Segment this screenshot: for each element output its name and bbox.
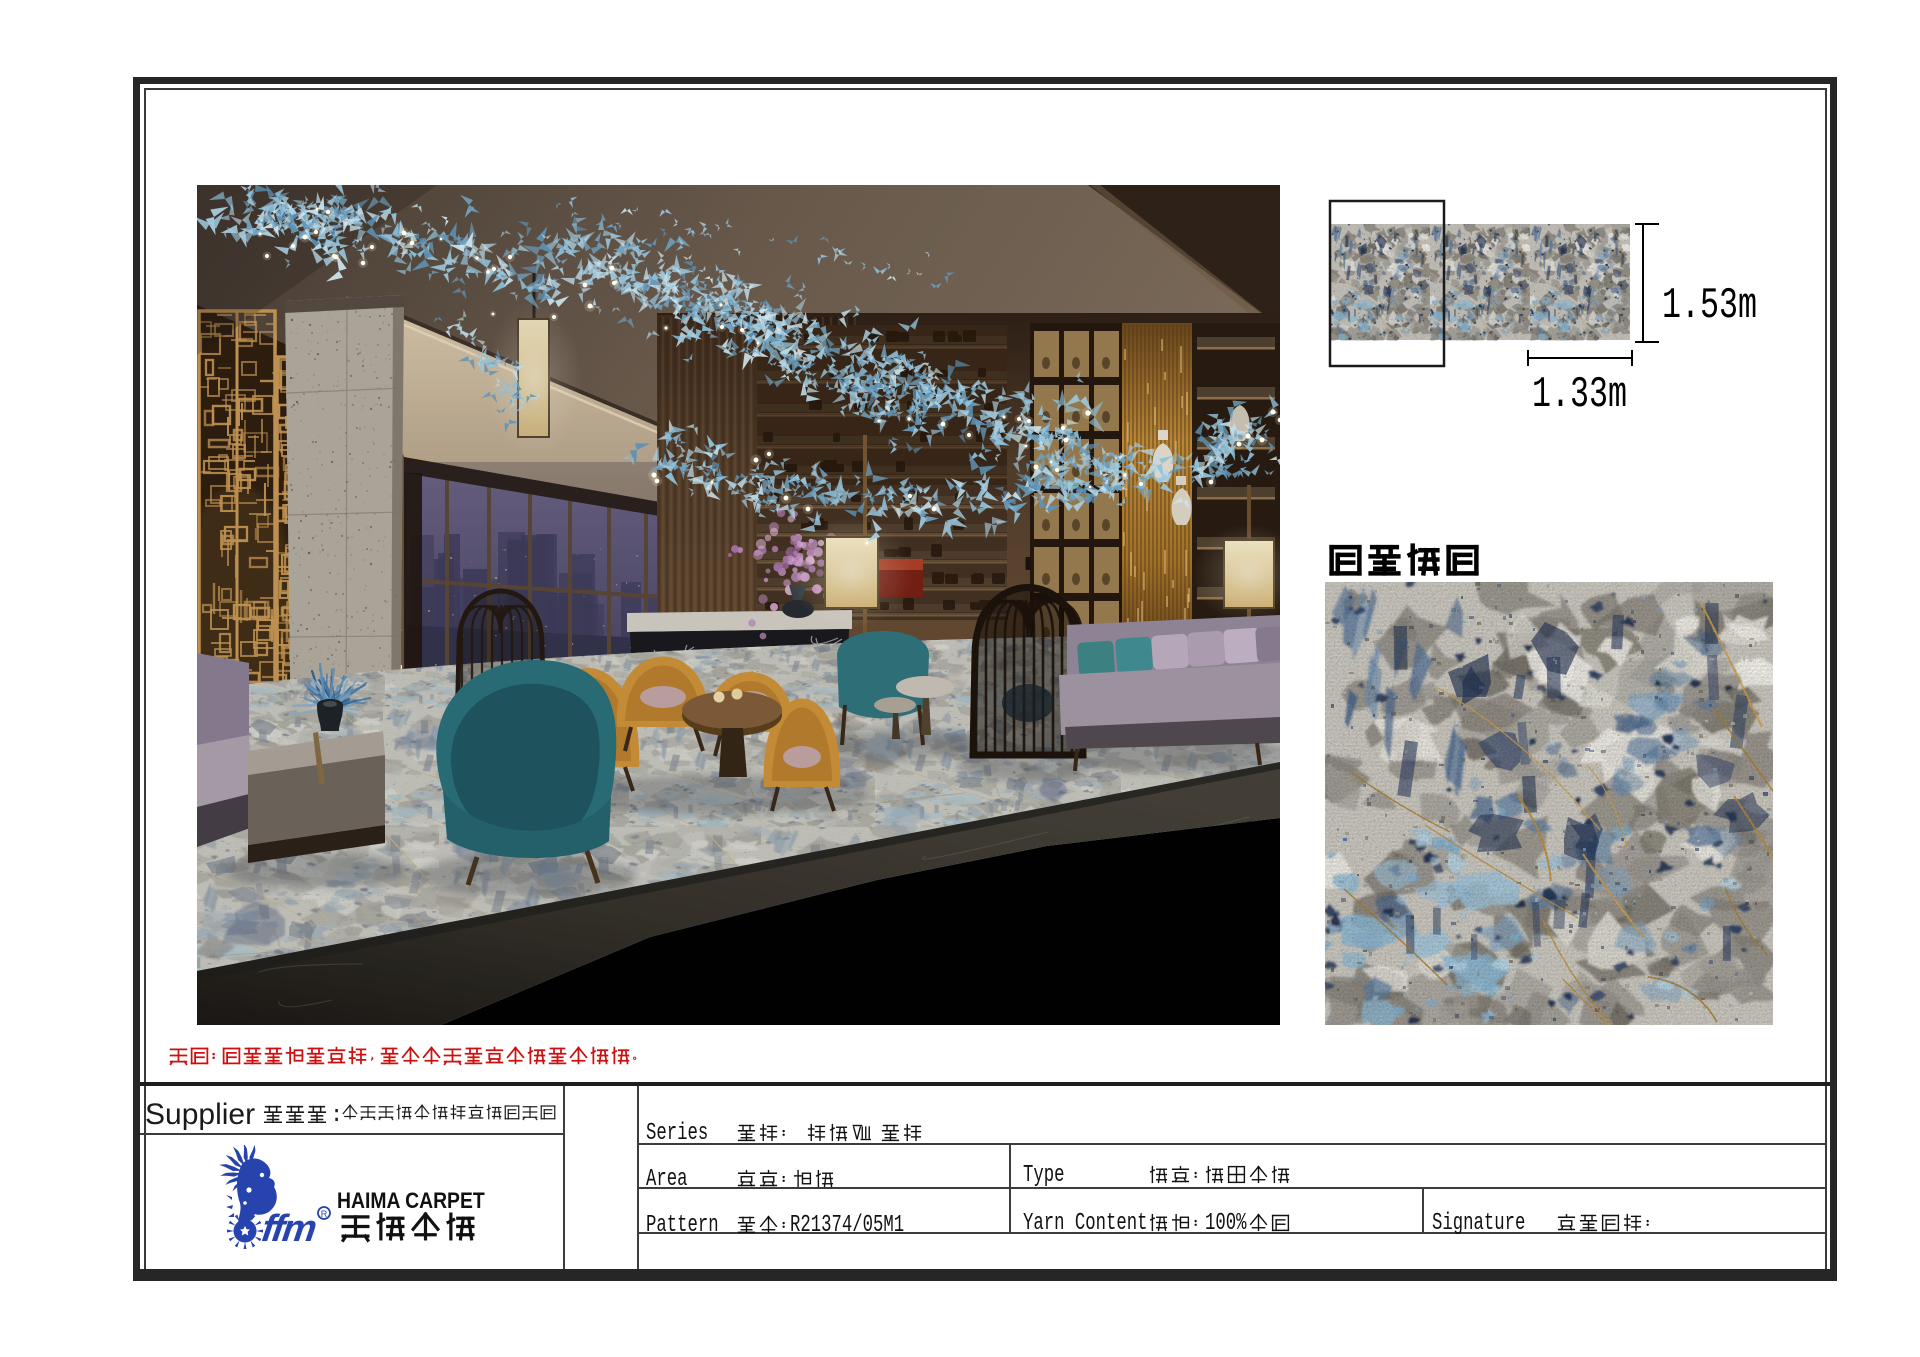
svg-text:ffm: ffm: [259, 1207, 318, 1250]
svg-text:R: R: [321, 1209, 328, 1219]
